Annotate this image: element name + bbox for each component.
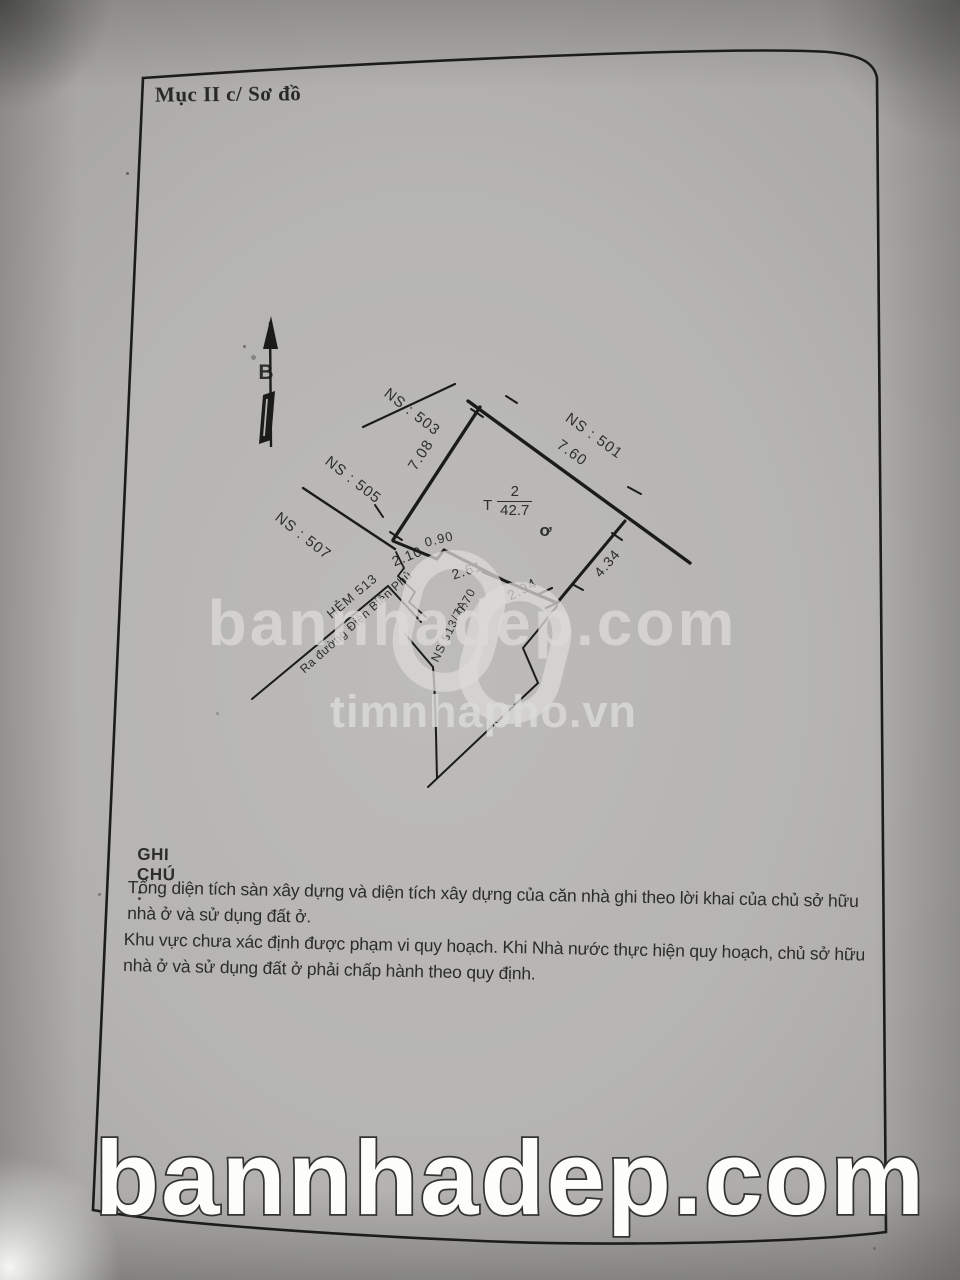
scanned-document-photo: Mục II c/ Sơ đồ B NS : 503 NS : 505 NS :… [0,0,960,1280]
watermark-bottom-text: bannhadep.com [95,1126,895,1231]
watermark-sub-text: timnhapho.vn [330,686,630,738]
watermark-center-text: bannhadep.com [200,586,745,660]
dust-specks [126,172,129,175]
